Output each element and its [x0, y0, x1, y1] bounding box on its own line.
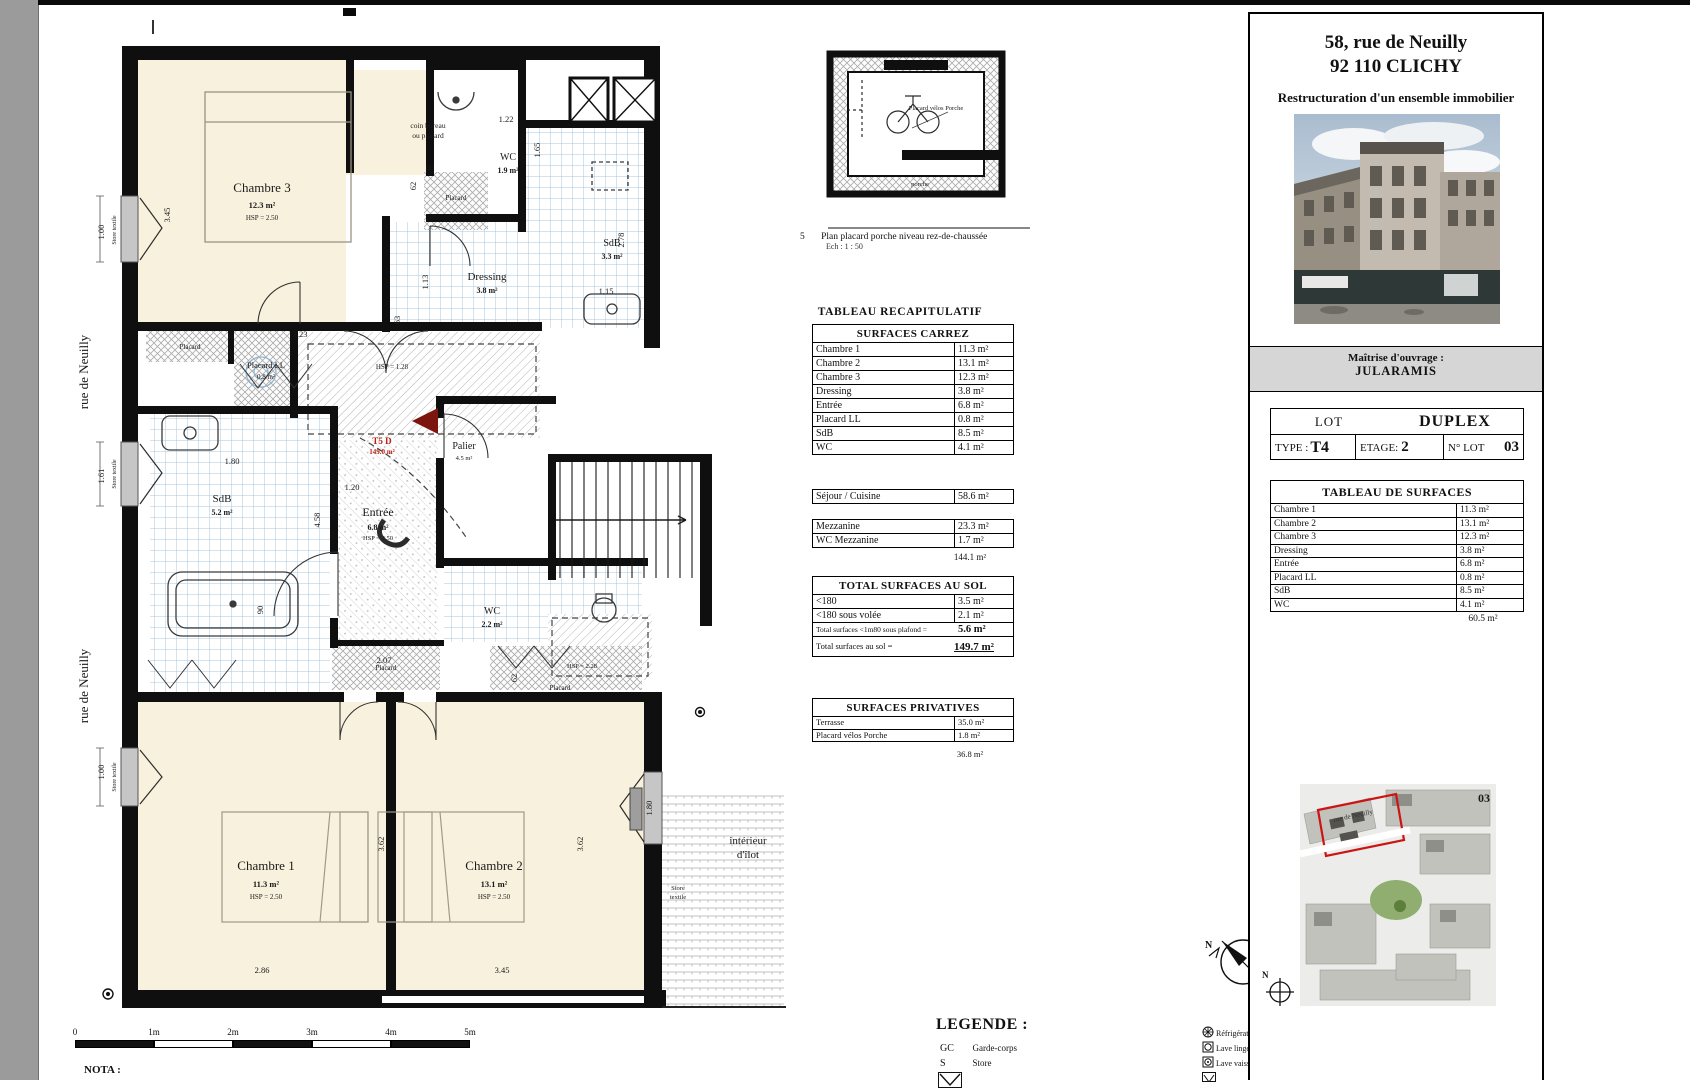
- facade-photo: [1294, 114, 1500, 324]
- table-row: SdB8.5 m²: [1271, 584, 1523, 598]
- label-coin-bureau-1: coin bureau: [410, 121, 445, 130]
- table-row: Placard LL0.8 m²: [813, 412, 1013, 426]
- legend-clipped-icon-2: [1202, 1072, 1216, 1082]
- label-hsp228: HSP = 2.28: [567, 663, 597, 670]
- project-subtitle: Restructuration d'un ensemble immobilier: [1250, 90, 1542, 106]
- svg-text:1.80: 1.80: [225, 456, 240, 466]
- surfaces-total: 60.5 m²: [1446, 614, 1520, 624]
- svg-text:90: 90: [255, 606, 265, 615]
- sol-subtotal-row: Total surfaces <1m80 sous plafond = 5.6 …: [813, 622, 1013, 636]
- dim-chains: [96, 196, 104, 806]
- lot-value: DUPLEX: [1387, 413, 1523, 431]
- legend-label-gc: Garde-corps: [973, 1043, 1017, 1053]
- label-entree-hsp: HSP = 2.50: [363, 535, 393, 542]
- sol-table: TOTAL SURFACES AU SOL <1803.5 m² <180 so…: [812, 576, 1014, 657]
- label-chambre3-hsp: HSP = 2.50: [246, 214, 279, 222]
- type-cell: TYPE : T4: [1271, 435, 1355, 460]
- numlot-cell: N° LOT 03: [1443, 435, 1523, 460]
- table-row: Entrée6.8 m²: [813, 398, 1013, 412]
- svg-text:1.00: 1.00: [96, 225, 106, 240]
- legend-entry-gc: GC Garde-corps: [940, 1043, 1017, 1054]
- label-placard-right: Placard: [550, 684, 571, 692]
- label-palier-area: 4.5 m²: [456, 455, 473, 462]
- label-dressing: Dressing: [467, 271, 507, 283]
- mezzanine-table: Mezzanine23.3 m² WC Mezzanine1.7 m²: [812, 519, 1014, 548]
- moa-name: JULARAMIS: [1250, 364, 1542, 379]
- label-chambre2-area: 13.1 m²: [481, 879, 508, 889]
- legend-appliance-washer: Lave linge: [1202, 1041, 1250, 1053]
- svg-text:3.62: 3.62: [575, 837, 585, 852]
- sol-table-title: TOTAL SURFACES AU SOL: [813, 577, 1013, 595]
- small-plan-porche-label: porche: [911, 181, 929, 188]
- label-wc-mid: WC: [484, 606, 500, 617]
- scale-label-2m: 2m: [227, 1027, 239, 1037]
- svg-text:1.00: 1.00: [96, 765, 106, 780]
- table-row: SdB8.5 m²: [813, 426, 1013, 440]
- bottom-wall-recess: [382, 996, 644, 1003]
- label-chambre1-area: 11.3 m²: [253, 879, 280, 889]
- table-row: Chambre 312.3 m²: [1271, 530, 1523, 544]
- legend-abbr-gc: GC: [940, 1043, 970, 1054]
- scale-bar: 0 1m 2m 3m 4m 5m: [75, 1040, 470, 1048]
- table-row: Mezzanine23.3 m²: [813, 520, 1013, 533]
- label-coin-bureau-2: ou placard: [412, 131, 444, 140]
- label-sdb-top-area: 3.3 m²: [601, 252, 623, 261]
- mezzanine-total: 144.1 m²: [930, 552, 1010, 562]
- legend-label-store: Store: [973, 1058, 992, 1068]
- label-interieur-1: intérieur: [729, 835, 767, 847]
- privatives-table-title: SURFACES PRIVATIVES: [813, 699, 1013, 717]
- svg-text:1.61: 1.61: [96, 469, 106, 484]
- label-placard-ll: Placard LL: [247, 360, 285, 370]
- dishwasher-icon: [1202, 1056, 1214, 1068]
- recap-title: TABLEAU RECAPITULATIF: [795, 306, 1005, 318]
- svg-text:62: 62: [408, 182, 418, 191]
- label-chambre2-hsp: HSP = 2.50: [478, 893, 511, 901]
- washer-icon: [1202, 1041, 1214, 1053]
- carrez-table-title: SURFACES CARREZ: [813, 325, 1013, 343]
- table-row: Chambre 312.3 m²: [813, 370, 1013, 384]
- sejour-table: Séjour / Cuisine58.6 m²: [812, 489, 1014, 504]
- legend-abbr-store: S: [940, 1058, 970, 1069]
- label-store-right-2: textile: [670, 894, 686, 901]
- small-plan-caption-text: Plan placard porche niveau rez-de-chauss…: [821, 232, 987, 242]
- store-label-2: Store textile: [112, 459, 118, 488]
- svg-text:3.62: 3.62: [376, 837, 386, 852]
- lot-box: LOT DUPLEX TYPE : T4 ETAGE: 2 N° LOT 03: [1270, 408, 1524, 460]
- label-wc-top-area: 1.9 m²: [497, 166, 519, 175]
- label-wc-top: WC: [500, 152, 516, 163]
- site-plan: 03 rue de Neuilly: [1300, 784, 1496, 1006]
- privatives-table: SURFACES PRIVATIVES Terrasse35.0 m² Plac…: [812, 698, 1014, 742]
- north-cross-label: N: [1262, 970, 1269, 980]
- label-placard-small: Placard: [446, 194, 467, 202]
- table-row: WC4.1 m²: [813, 440, 1013, 454]
- label-entree-area: 6.8 m²: [367, 523, 389, 532]
- svg-text:1.20: 1.20: [345, 482, 360, 492]
- svg-text:1.13: 1.13: [420, 275, 430, 290]
- store-box: [630, 788, 642, 830]
- svg-text:1.65: 1.65: [532, 143, 542, 158]
- svg-text:3.45: 3.45: [495, 965, 510, 975]
- table-row: Chambre 213.1 m²: [1271, 517, 1523, 531]
- table-row: WC4.1 m²: [1271, 598, 1523, 612]
- label-placard-under-entree: Placard: [376, 664, 397, 672]
- scale-label-3m: 3m: [306, 1027, 318, 1037]
- label-chambre3-area: 12.3 m²: [249, 200, 276, 210]
- moa-label: Maîtrise d'ouvrage :: [1250, 352, 1542, 364]
- label-store-right-1: Store: [671, 885, 685, 892]
- table-row: Placard LL0.8 m²: [1271, 571, 1523, 585]
- label-dressing-area: 3.8 m²: [476, 286, 498, 295]
- title-block-panel: 58, rue de Neuilly 92 110 CLICHY Restruc…: [1248, 12, 1544, 1080]
- project-address-1: 58, rue de Neuilly: [1250, 32, 1542, 54]
- svg-text:4.58: 4.58: [312, 513, 322, 528]
- nota-label: NOTA :: [84, 1064, 121, 1076]
- label-sdb-main-area: 5.2 m²: [211, 508, 233, 517]
- svg-text:60: 60: [426, 162, 435, 172]
- fridge-icon: [1202, 1026, 1214, 1038]
- privatives-total: 36.8 m²: [930, 749, 1010, 759]
- small-plan-caption: 5 Plan placard porche niveau rez-de-chau…: [800, 232, 1040, 251]
- label-t5d: T5 D: [372, 436, 392, 446]
- svg-text:2.78: 2.78: [616, 233, 626, 248]
- table-row: Dressing3.8 m²: [813, 384, 1013, 398]
- table-row: Placard vélos Porche1.8 m²: [813, 729, 1013, 742]
- svg-text:2.07: 2.07: [377, 655, 392, 665]
- small-plan-scale: Ech : 1 : 50: [826, 242, 1040, 251]
- label-t5d-area: 149.0 m²: [369, 448, 394, 456]
- label-placard-ll-area: 0.8 m²: [257, 373, 275, 381]
- label-placard-band: Placard: [180, 343, 201, 351]
- lot-label: LOT: [1271, 414, 1387, 430]
- scale-label-0: 0: [73, 1027, 78, 1037]
- table-row: Dressing3.8 m²: [1271, 544, 1523, 558]
- svg-text:62: 62: [509, 674, 519, 683]
- table-row: Chambre 111.3 m²: [813, 343, 1013, 356]
- table-row: Entrée6.8 m²: [1271, 557, 1523, 571]
- shaft-boxes: [570, 78, 656, 122]
- scale-label-5m: 5m: [464, 1027, 476, 1037]
- svg-text:3.23: 3.23: [293, 329, 308, 339]
- table-row: Terrasse35.0 m²: [813, 717, 1013, 729]
- room-fills: [138, 60, 784, 1008]
- svg-text:1.80: 1.80: [644, 801, 654, 816]
- carrez-table: SURFACES CARREZ Chambre 111.3 m² Chambre…: [812, 324, 1014, 455]
- moa-band: Maîtrise d'ouvrage : JULARAMIS: [1250, 346, 1542, 392]
- label-interieur-2: d'îlot: [737, 849, 759, 861]
- store-label-3: Store textile: [112, 762, 118, 791]
- label-chambre1-hsp: HSP = 2.50: [250, 893, 283, 901]
- street-label-lower: rue de Neuilly: [76, 648, 91, 723]
- table-row: <1803.5 m²: [813, 595, 1013, 608]
- table-row: Chambre 213.1 m²: [813, 356, 1013, 370]
- scale-label-1m: 1m: [148, 1027, 160, 1037]
- surfaces-table-title: TABLEAU DE SURFACES: [1271, 481, 1523, 504]
- legend-entry-store: S Store: [940, 1058, 992, 1069]
- svg-text:1.22: 1.22: [499, 114, 514, 124]
- legend-clipped-icon: [938, 1072, 962, 1088]
- table-row: Chambre 111.3 m²: [1271, 504, 1523, 517]
- label-palier: Palier: [452, 441, 476, 452]
- architectural-sheet: { "sheet": { "nota": "NOTA :" }, "street…: [0, 0, 1690, 1080]
- table-row: <180 sous volée2.1 m²: [813, 608, 1013, 622]
- label-sdb-main: SdB: [213, 493, 232, 505]
- label-wc-mid-area: 2.2 m²: [481, 620, 503, 629]
- store-label-1: Store textile: [112, 215, 118, 244]
- compass-north-label: N: [1205, 940, 1213, 951]
- small-plan: Placard vélos Porche porche: [830, 54, 1002, 194]
- scale-label-4m: 4m: [385, 1027, 397, 1037]
- street-label-upper: rue de Neuilly: [76, 334, 91, 409]
- label-hsp128: HSP = 1.28: [376, 363, 409, 371]
- svg-text:3.45: 3.45: [162, 208, 172, 223]
- small-plan-placard-label: Placard vélos Porche: [909, 105, 964, 112]
- svg-text:1.15: 1.15: [599, 286, 614, 296]
- etage-cell: ETAGE: 2: [1355, 435, 1443, 460]
- label-chambre1: Chambre 1: [237, 858, 294, 873]
- small-plan-number: 5: [800, 232, 805, 242]
- svg-text:2.86: 2.86: [255, 965, 270, 975]
- table-row: WC Mezzanine1.7 m²: [813, 533, 1013, 547]
- project-address-2: 92 110 CLICHY: [1250, 56, 1542, 78]
- sol-total-row: Total surfaces au sol = 149.7 m²: [813, 636, 1013, 656]
- legend-title: LEGENDE :: [936, 1016, 1028, 1034]
- svg-text:63: 63: [392, 316, 402, 325]
- site-plan-number: 03: [1478, 791, 1490, 805]
- north-cross: N: [1258, 966, 1298, 1010]
- surfaces-table: TABLEAU DE SURFACES Chambre 111.3 m² Cha…: [1270, 480, 1524, 612]
- table-row: Séjour / Cuisine58.6 m²: [813, 490, 1013, 503]
- label-entree: Entrée: [362, 505, 393, 519]
- label-chambre3: Chambre 3: [233, 180, 290, 195]
- label-chambre2: Chambre 2: [465, 858, 522, 873]
